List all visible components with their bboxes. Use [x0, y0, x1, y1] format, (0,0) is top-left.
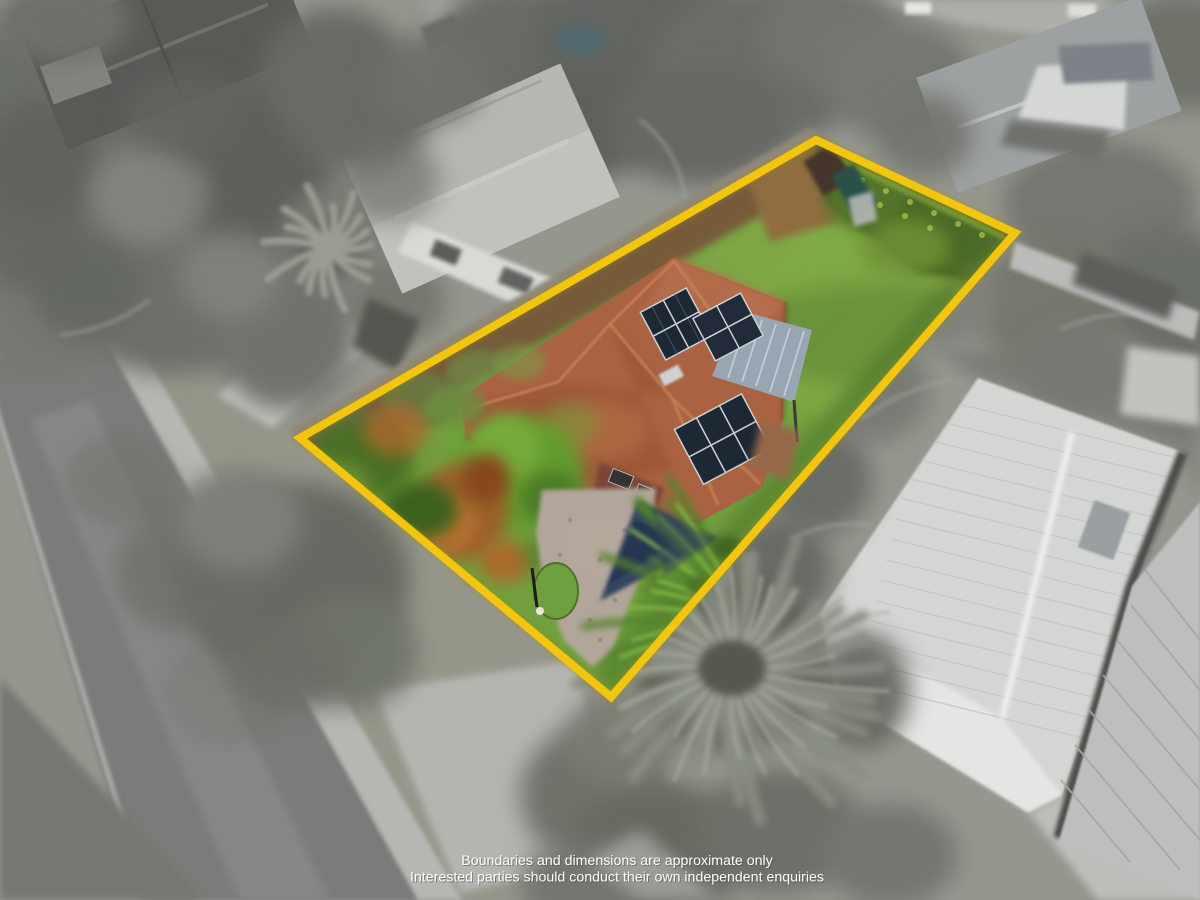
svg-text:Interested parties should cond: Interested parties should conduct their … — [410, 870, 824, 886]
svg-text:Boundaries and dimensions are: Boundaries and dimensions are approximat… — [461, 853, 773, 869]
